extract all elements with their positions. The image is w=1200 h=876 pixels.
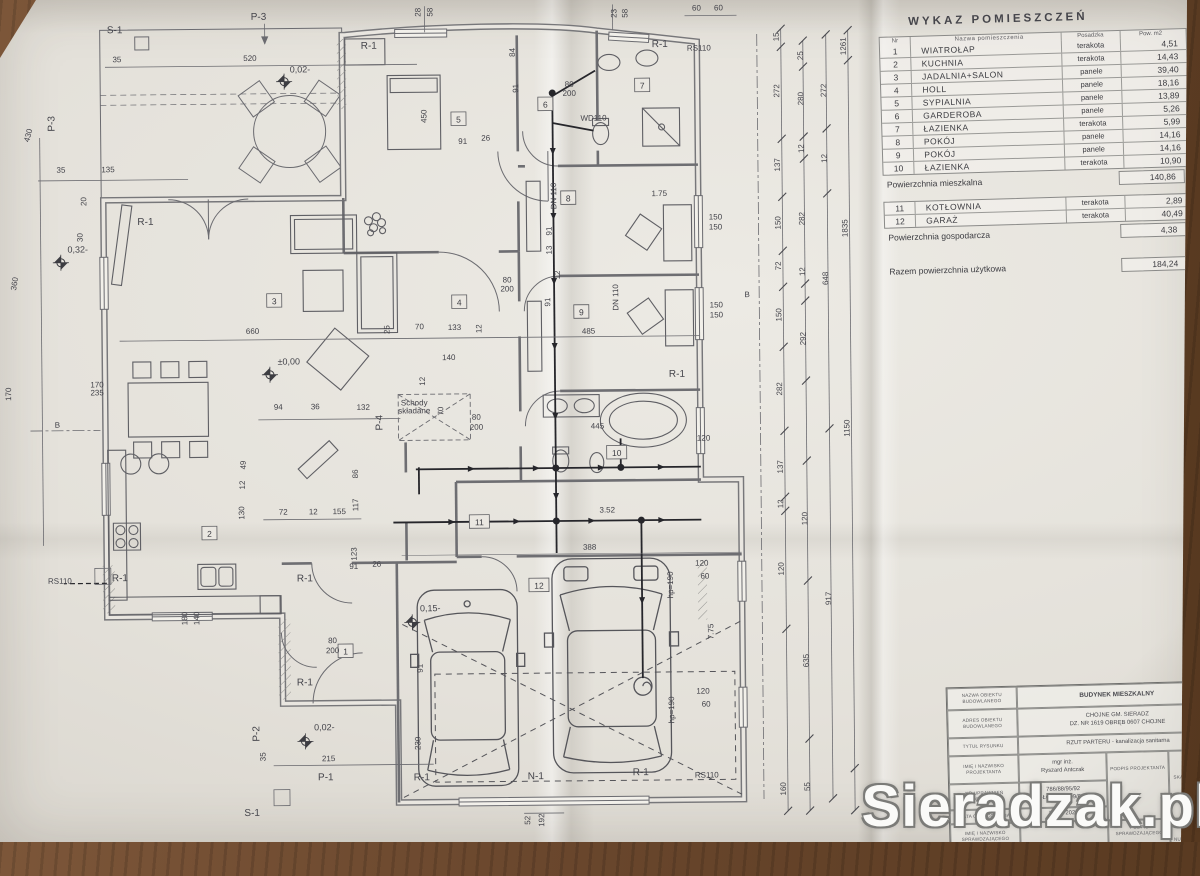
round-table <box>253 95 326 168</box>
plan-annotation: 430 <box>22 127 34 143</box>
plan-annotation: 84 <box>508 47 517 57</box>
plan-annotation: 80 <box>328 636 338 645</box>
plan-annotation: R-1 <box>112 573 129 584</box>
plan-annotation: R-1 <box>669 369 686 380</box>
plan-annotation: 917 <box>824 591 833 605</box>
cell-nr: 8 <box>883 136 914 149</box>
chair-room8 <box>626 214 662 250</box>
plan-annotation: 170 <box>4 387 13 401</box>
plan-annotation: 282 <box>775 382 784 396</box>
plan-annotation: 200 <box>326 646 340 655</box>
cell-area: 40,49 <box>1125 207 1191 221</box>
plan-annotation: RS110 <box>695 770 720 779</box>
plan-annotation: 450 <box>419 109 428 123</box>
aux-sum-value: 4,38 <box>1120 222 1186 238</box>
wardrobe-room9 <box>527 301 542 371</box>
cell-nr: 4 <box>881 84 912 97</box>
living-sum-value: 140,86 <box>1119 169 1185 185</box>
plan-annotation: 1261 <box>839 37 848 55</box>
plan-annotation: 140 <box>192 611 201 625</box>
floor-drain <box>634 677 652 695</box>
room-number: 1 <box>338 644 353 658</box>
svg-text:3: 3 <box>272 296 277 306</box>
total-value: 184,24 <box>1121 256 1187 272</box>
plan-annotation: 36 <box>311 402 321 411</box>
car-2 <box>544 558 680 773</box>
plan-annotation: 520 <box>243 54 257 63</box>
tv-stand <box>298 441 338 479</box>
plan-annotation: 635 <box>802 653 811 667</box>
cell-floor: panele <box>1061 78 1121 92</box>
cell-nr: 9 <box>883 149 914 162</box>
room-number: 5 <box>451 112 466 126</box>
room-number: 10 <box>607 445 627 459</box>
field-label: NR UPRAWNIEŃ BUDOWLANYCH <box>952 851 1020 864</box>
plan-annotation: R-1 <box>297 573 314 584</box>
plan-annotation: 35 <box>112 55 122 64</box>
plan-annotation: B <box>55 421 60 430</box>
room-table: Nr Nazwa pomieszczenia Posadzka Pow. m2 … <box>879 28 1191 176</box>
plan-annotation: 12 <box>797 144 806 154</box>
plan-annotation: 28 <box>413 7 422 17</box>
room-number: 7 <box>635 78 650 92</box>
plan-annotation: 60 <box>692 4 702 13</box>
cell-nr: 3 <box>881 71 912 84</box>
washbasin <box>598 54 620 70</box>
room-number: 2 <box>202 526 217 540</box>
plan-annotation: 150 <box>709 212 723 221</box>
plan-annotation: 80 <box>503 275 513 284</box>
plan-annotation: 3.52 <box>599 505 615 514</box>
cell-floor: terakota <box>1063 117 1123 131</box>
plan-annotation: 120 <box>800 511 809 525</box>
plan-annotation: 55 <box>803 782 812 792</box>
cell-area: 10,90 <box>1123 154 1189 168</box>
plan-annotation: 133 <box>448 323 462 332</box>
cell-floor: panele <box>1061 65 1121 79</box>
plan-annotation: 15 <box>772 32 781 42</box>
plan-annotation: N-1 <box>528 771 545 782</box>
plan-annotation: 12 <box>553 270 562 280</box>
dining-chairs <box>133 361 208 458</box>
plan-annotation: R-1 <box>652 39 669 50</box>
plan-annotation: 150 <box>709 222 723 231</box>
cell-nr: 5 <box>881 97 912 110</box>
plan-annotation: 235 <box>90 388 104 397</box>
designer-signature-label: PODPIS PROJEKTANTA <box>1110 765 1165 772</box>
cell-nr: 7 <box>882 123 913 136</box>
svg-text:12: 12 <box>534 581 544 591</box>
cell-floor: panele <box>1062 104 1122 118</box>
cell-area: 4,51 <box>1120 37 1186 51</box>
plan-annotation: 86 <box>351 469 360 479</box>
drawing-sheet: 123456789101112 S-1P-3P-3R-1R-1RS110R-1B… <box>0 0 1200 848</box>
svg-text:1: 1 <box>343 647 348 657</box>
plan-annotation: 1150 <box>842 419 851 437</box>
plan-annotation: 150 <box>710 310 724 319</box>
plan-annotation: 30 <box>76 233 85 243</box>
plan-annotation: 123 <box>350 547 359 561</box>
plan-annotation: R-1 <box>297 677 314 688</box>
cell-area: 14,16 <box>1123 141 1189 155</box>
plan-annotation: 485 <box>582 327 596 336</box>
plan-annotation: 120 <box>777 562 786 576</box>
room-number: 12 <box>529 578 549 592</box>
plan-annotation: 70 <box>436 406 445 416</box>
plan-annotation: 272 <box>819 83 828 97</box>
car-1 <box>410 589 526 786</box>
address-line2: DZ. NR 1619 OBRĘB 0607 CHOJNE <box>1070 719 1166 729</box>
svg-text:7: 7 <box>640 81 645 91</box>
plan-annotation: 60 <box>700 572 710 581</box>
room-number: 4 <box>452 295 467 309</box>
watermark: Sieradzak.pl <box>862 773 1200 840</box>
plan-annotation: 0,02- <box>290 64 311 74</box>
plan-annotation: R-1 <box>137 217 154 228</box>
plan-annotation: składane <box>398 406 431 415</box>
plan-annotation: 132 <box>357 403 371 412</box>
plan-annotation: 12 <box>418 376 427 386</box>
plan-annotation: 0,15- <box>420 603 441 613</box>
armchair <box>303 270 343 311</box>
plan-annotation: 0,02- <box>314 722 335 732</box>
plan-annotation: RS110 <box>48 577 73 586</box>
room-number: 11 <box>469 515 489 529</box>
plan-annotation: 292 <box>799 331 808 345</box>
cell-nr: 1 <box>880 45 911 58</box>
plan-annotation: RS110 <box>687 43 712 52</box>
plan-annotation: 150 <box>710 300 724 309</box>
plan-annotation: 282 <box>797 211 806 225</box>
room-schedule: WYKAZ POMIESZCZEŃ Nr Nazwa pomieszczenia… <box>878 8 1193 279</box>
cell-floor: panele <box>1062 91 1122 105</box>
svg-text:8: 8 <box>566 193 571 203</box>
shower <box>642 108 679 146</box>
double-sink <box>198 564 236 589</box>
field-label: ADRES OBIEKTU BUDOWLANEGO <box>948 717 1016 730</box>
plant <box>364 213 385 236</box>
plan-annotation: 660 <box>246 327 260 336</box>
room-number: 9 <box>574 305 589 319</box>
plan-annotation: P-4 <box>374 414 385 430</box>
desk-room9 <box>665 290 694 346</box>
dining-table <box>128 382 209 437</box>
svg-text:11: 11 <box>475 517 484 527</box>
french-door-right <box>208 199 248 239</box>
svg-text:2: 2 <box>207 529 212 539</box>
plan-annotation: 72 <box>774 261 783 271</box>
plan-annotation: 137 <box>776 460 785 474</box>
plan-annotation: 91 <box>511 83 520 93</box>
plan-annotation: 135 <box>101 165 115 174</box>
plan-annotation: 150 <box>774 308 783 322</box>
plan-annotation: 120 <box>697 434 711 443</box>
garage-gate <box>459 796 649 806</box>
bidet <box>590 453 604 473</box>
cell-area: 5,26 <box>1121 102 1187 116</box>
cell-area: 18,16 <box>1121 76 1187 90</box>
total-label: Razem powierzchnia użytkowa <box>885 260 1121 277</box>
plan-annotation: 58 <box>620 8 629 18</box>
plan-annotation: 280 <box>796 91 805 105</box>
plan-annotation: 0,32- <box>67 244 88 254</box>
cell-nr: 12 <box>885 215 916 228</box>
plan-annotation: hp=190 <box>666 571 675 599</box>
plan-annotation: 91 <box>545 226 554 236</box>
chair-room9 <box>627 298 663 334</box>
cell-floor: terakota <box>1060 39 1120 53</box>
cell-nr: 10 <box>883 162 914 175</box>
svg-text:6: 6 <box>543 100 548 110</box>
plan-annotation: P-2 <box>251 726 262 742</box>
field-label: TYTUŁ RYSUNKU <box>963 743 1004 750</box>
drawing-title: RZUT PARTERU - kanalizacja sanitarna <box>1066 738 1170 748</box>
plan-annotation: 200 <box>563 89 577 98</box>
plan-annotation: 155 <box>333 507 347 516</box>
plan-annotation: 91 <box>416 663 425 673</box>
dishwasher <box>260 596 280 614</box>
svg-text:5: 5 <box>456 114 461 124</box>
cell-nr: 2 <box>880 58 911 71</box>
plan-annotation: 80 <box>565 80 575 89</box>
sofa <box>290 215 356 254</box>
room-number: 6 <box>538 97 553 111</box>
cell-area: 5,99 <box>1122 115 1188 129</box>
plan-annotation: 388 <box>583 543 597 552</box>
plan-annotation: 49 <box>239 460 248 470</box>
plan-annotation: 70 <box>415 322 425 331</box>
sideboard <box>112 205 132 286</box>
plan-annotation: 180 <box>180 611 189 625</box>
basin-counter <box>543 395 599 418</box>
french-door-left <box>168 199 208 239</box>
kitchen-fixtures <box>108 449 282 616</box>
section-lines <box>26 3 764 818</box>
cell-area: 39,40 <box>1120 63 1186 77</box>
plan-annotation: 160 <box>779 782 788 796</box>
bed <box>387 75 441 150</box>
cell-area: 2,89 <box>1124 194 1190 208</box>
cell-floor: terakota <box>1065 209 1125 223</box>
plan-annotation: B <box>744 290 749 299</box>
plan-annotation: WD110 <box>580 113 607 122</box>
plan-annotation: P-1 <box>318 772 334 783</box>
plan-annotation: 648 <box>821 271 830 285</box>
roof-post <box>135 37 149 50</box>
wardrobe-room8 <box>526 181 541 251</box>
living-room-furniture <box>111 202 399 480</box>
field-label: NAZWA OBIEKTU BUDOWLANEGO <box>948 692 1016 705</box>
cell-floor: panele <box>1063 143 1123 157</box>
plan-annotation: 25 <box>796 51 805 61</box>
plan-annotation: S-1 <box>244 808 260 819</box>
plan-annotation: R-1 <box>633 767 650 778</box>
paper-sheet: 123456789101112 S-1P-3P-3R-1R-1RS110R-1B… <box>0 0 1200 842</box>
plan-annotation: 140 <box>442 353 456 362</box>
plan-annotation: 137 <box>773 158 782 172</box>
cell-floor: terakota <box>1061 52 1121 66</box>
plan-annotation: 445 <box>591 422 605 431</box>
cell-floor: terakota <box>1065 196 1125 210</box>
plan-annotation: 12 <box>238 480 247 490</box>
plan-annotation: 60 <box>702 700 712 709</box>
plan-annotation: DN 110 <box>549 182 558 209</box>
plan-annotation: S-1 <box>107 25 123 36</box>
bathtub <box>600 393 687 448</box>
plan-annotation: 58 <box>425 7 434 17</box>
plan-annotation: 12 <box>820 153 829 163</box>
plan-annotation: R-1 <box>414 772 431 783</box>
plan-annotation: 26 <box>372 560 382 569</box>
plan-annotation: 130 <box>237 506 246 520</box>
plan-annotation: 200 <box>470 423 484 432</box>
desk-room8 <box>663 205 692 261</box>
plan-annotation: 230 <box>413 736 422 750</box>
plan-annotation: P-3 <box>46 116 57 132</box>
building-name: BUDYNEK MIESZKALNY <box>1079 690 1154 700</box>
plan-annotation: 1.75 <box>651 189 667 198</box>
plan-annotation: 23 <box>609 8 618 18</box>
plan-annotation: 192 <box>537 813 546 827</box>
plan-annotation: P-3 <box>251 12 267 23</box>
terrace <box>100 28 344 200</box>
plan-annotation: 13 <box>545 245 554 255</box>
plan-annotation: 272 <box>772 84 781 98</box>
dimension-chains <box>777 24 860 815</box>
plan-annotation: hp=190 <box>667 696 676 724</box>
svg-text:4: 4 <box>457 297 462 307</box>
svg-text:9: 9 <box>579 307 584 317</box>
cell-nr: 11 <box>884 202 915 215</box>
room-number: 8 <box>561 191 576 205</box>
plan-annotation: 80 <box>472 413 482 422</box>
cell-floor: terakota <box>1064 156 1124 170</box>
plan-annotation: 25 <box>382 325 391 335</box>
sanitary-pipes <box>59 70 703 684</box>
plan-annotation: 117 <box>351 498 360 511</box>
sofa-2 <box>357 253 398 333</box>
plan-annotation: 120 <box>696 687 710 696</box>
plan-annotation: 60 <box>714 3 724 12</box>
plan-annotation: 91 <box>458 137 468 146</box>
coffee-table <box>307 328 369 390</box>
svg-text:10: 10 <box>612 448 622 458</box>
cell-floor: panele <box>1063 130 1123 144</box>
cell-area: 14,43 <box>1120 50 1186 64</box>
plan-annotation: 120 <box>695 559 709 568</box>
plan-annotation: 12 <box>474 324 483 334</box>
parking-outline <box>402 621 742 797</box>
plan-annotation: 200 <box>500 284 514 293</box>
plan-annotation: 360 <box>9 276 20 291</box>
plan-annotation: 91 <box>543 297 552 307</box>
plan-annotation: 12 <box>776 499 785 509</box>
plan-annotation: ±0,00 <box>278 356 301 366</box>
garage <box>402 557 742 797</box>
room-schedule-title: WYKAZ POMIESZCZEŃ <box>908 8 1186 28</box>
plan-annotation: 26 <box>481 134 491 143</box>
entry-door <box>313 653 363 703</box>
plan-annotation: 150 <box>773 216 782 230</box>
plan-annotation: 12 <box>309 507 319 516</box>
floor-plan-drawing: 123456789101112 S-1P-3P-3R-1R-1RS110R-1B… <box>0 0 884 848</box>
plan-annotation: 35 <box>259 752 268 762</box>
plan-annotation: 35 <box>56 166 66 175</box>
plan-annotation: 72 <box>279 508 289 517</box>
plan-annotation: 7.75 <box>706 623 715 639</box>
photo-of-blueprint: 123456789101112 S-1P-3P-3R-1R-1RS110R-1B… <box>0 0 1200 842</box>
plan-annotation: 1835 <box>840 219 849 237</box>
plan-annotation: DN 110 <box>611 284 620 311</box>
plan-annotation: 215 <box>322 754 336 763</box>
room-number: 3 <box>267 294 282 308</box>
plan-annotation: 12 <box>798 267 807 277</box>
plan-annotation: 20 <box>79 196 88 206</box>
plan-annotation: R-1 <box>361 41 378 52</box>
cell-nr: 6 <box>882 110 913 123</box>
plan-annotation: 52 <box>523 815 532 825</box>
cell-area: 14,16 <box>1122 128 1188 142</box>
plan-annotation: 91 <box>349 562 359 571</box>
cell-area: 13,89 <box>1121 89 1187 103</box>
plan-annotation: 94 <box>274 403 284 412</box>
washbasin <box>636 50 658 66</box>
